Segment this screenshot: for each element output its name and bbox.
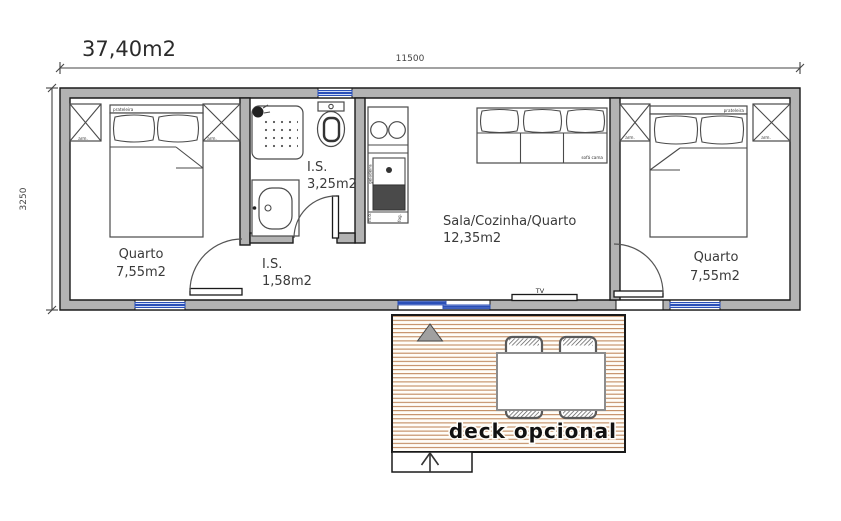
shelf-label: prateleira xyxy=(113,107,134,112)
room-area: 12,35m2 xyxy=(443,231,501,246)
wardrobe-label: arm. xyxy=(761,135,771,140)
microwave-label: m.o. xyxy=(367,213,372,222)
room-area: 3,25m2 xyxy=(307,177,357,192)
floor-plan-canvas: 37,40m2 11500 3250 xyxy=(0,0,841,521)
room-name: Quarto xyxy=(119,247,164,262)
room-name: Sala/Cozinha/Quarto xyxy=(443,214,576,229)
sofa-bed-icon: sofá cama xyxy=(477,108,607,163)
deck-label: deck opcional xyxy=(449,419,617,443)
room-name: I.S. xyxy=(307,160,327,175)
wardrobe-icon: arm. xyxy=(70,104,101,141)
wardrobe-label: arm. xyxy=(78,136,88,141)
room-name: I.S. xyxy=(262,257,282,272)
door-arc xyxy=(614,244,663,297)
dimension-height-label: 3250 xyxy=(19,187,29,210)
deck-optional: deck opcional xyxy=(392,315,625,452)
tv-label: TV xyxy=(535,287,545,295)
wardrobe-icon: arm. xyxy=(753,104,790,141)
window-bedroom-left xyxy=(135,303,185,308)
dining-table-icon xyxy=(497,353,605,410)
double-bed-icon: prateleira xyxy=(110,105,203,237)
stove-label: fog. xyxy=(397,214,402,222)
double-bed-icon: prateleira xyxy=(650,106,747,237)
bathroom: I.S. 3,25m2 xyxy=(252,102,357,238)
room-area: 1,58m2 xyxy=(262,274,312,289)
page-title: 37,40m2 xyxy=(82,37,176,61)
wardrobe-label: arm. xyxy=(207,136,217,141)
dimension-width-label: 11500 xyxy=(396,54,425,64)
floor-plan-page: 37,40m2 11500 3250 xyxy=(0,0,841,521)
bedroom-right: arm. arm. prateleira Quarto 7,55m2 xyxy=(614,104,790,297)
window-top-bathroom xyxy=(318,91,352,96)
wardrobe-icon: arm. xyxy=(620,104,650,141)
room-area: 7,55m2 xyxy=(690,269,740,284)
bedroom-left: arm. arm. prateleira Quarto 7,55m2 xyxy=(70,104,242,295)
wardrobe-icon: arm. xyxy=(203,104,240,141)
room-name: Quarto xyxy=(694,250,739,265)
dimension-left: 3250 xyxy=(19,84,58,314)
shelf-label: prateleira xyxy=(724,108,745,113)
room-area: 7,55m2 xyxy=(116,265,166,280)
fridge-label: geladeira xyxy=(368,164,373,184)
sofa-bed-label: sofá cama xyxy=(581,155,603,160)
kitchen-counter-icon: geladeira m.o. fog. xyxy=(367,107,408,223)
shower-icon xyxy=(252,105,303,159)
toilet-icon xyxy=(318,102,345,147)
sink-icon xyxy=(252,180,299,236)
wardrobe-label: arm. xyxy=(625,135,635,140)
entry-steps xyxy=(392,452,472,472)
door-arc xyxy=(294,196,339,238)
door-arc xyxy=(190,239,242,295)
living-kitchen: geladeira m.o. fog. sofá cama Sala/Cozin… xyxy=(367,107,607,301)
window-bedroom-right xyxy=(670,303,720,308)
tv-rack-icon: TV xyxy=(512,287,577,301)
hall-wc: I.S. 1,58m2 xyxy=(262,257,312,289)
